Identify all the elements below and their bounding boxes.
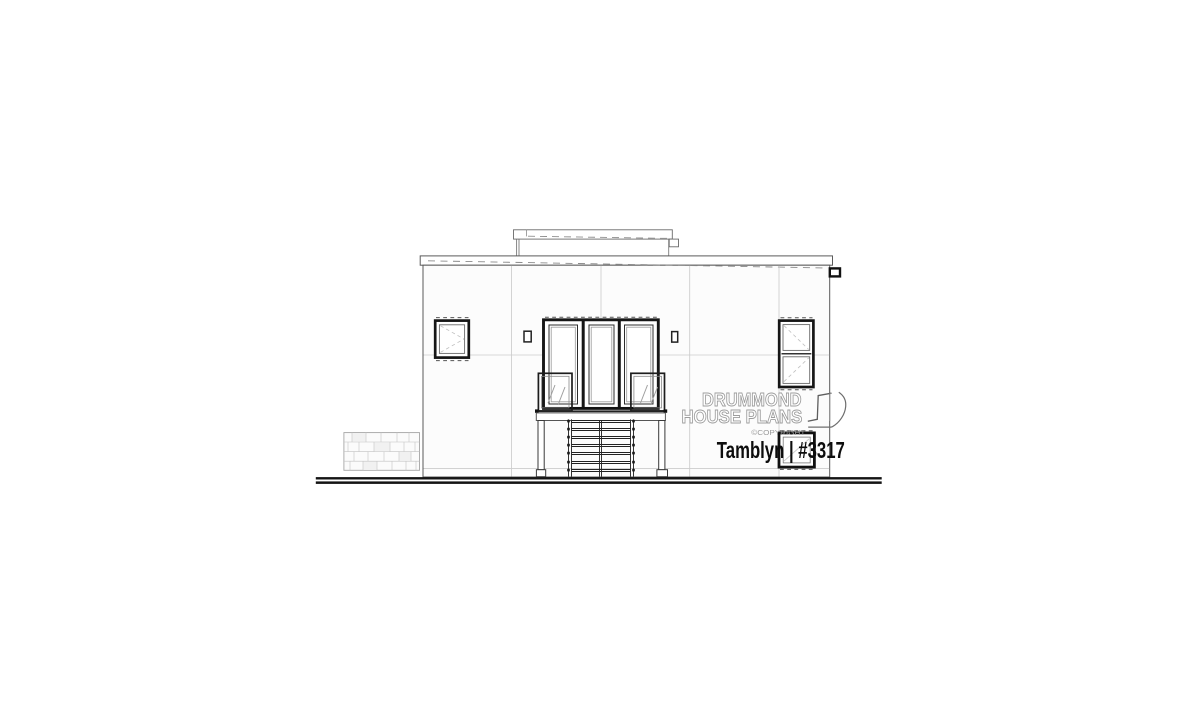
svg-text:©COPYRIGHT: ©COPYRIGHT	[751, 428, 806, 437]
svg-text:HOUSE PLANS: HOUSE PLANS	[682, 407, 803, 427]
svg-text:Tamblyn | #3317: Tamblyn | #3317	[717, 437, 845, 463]
